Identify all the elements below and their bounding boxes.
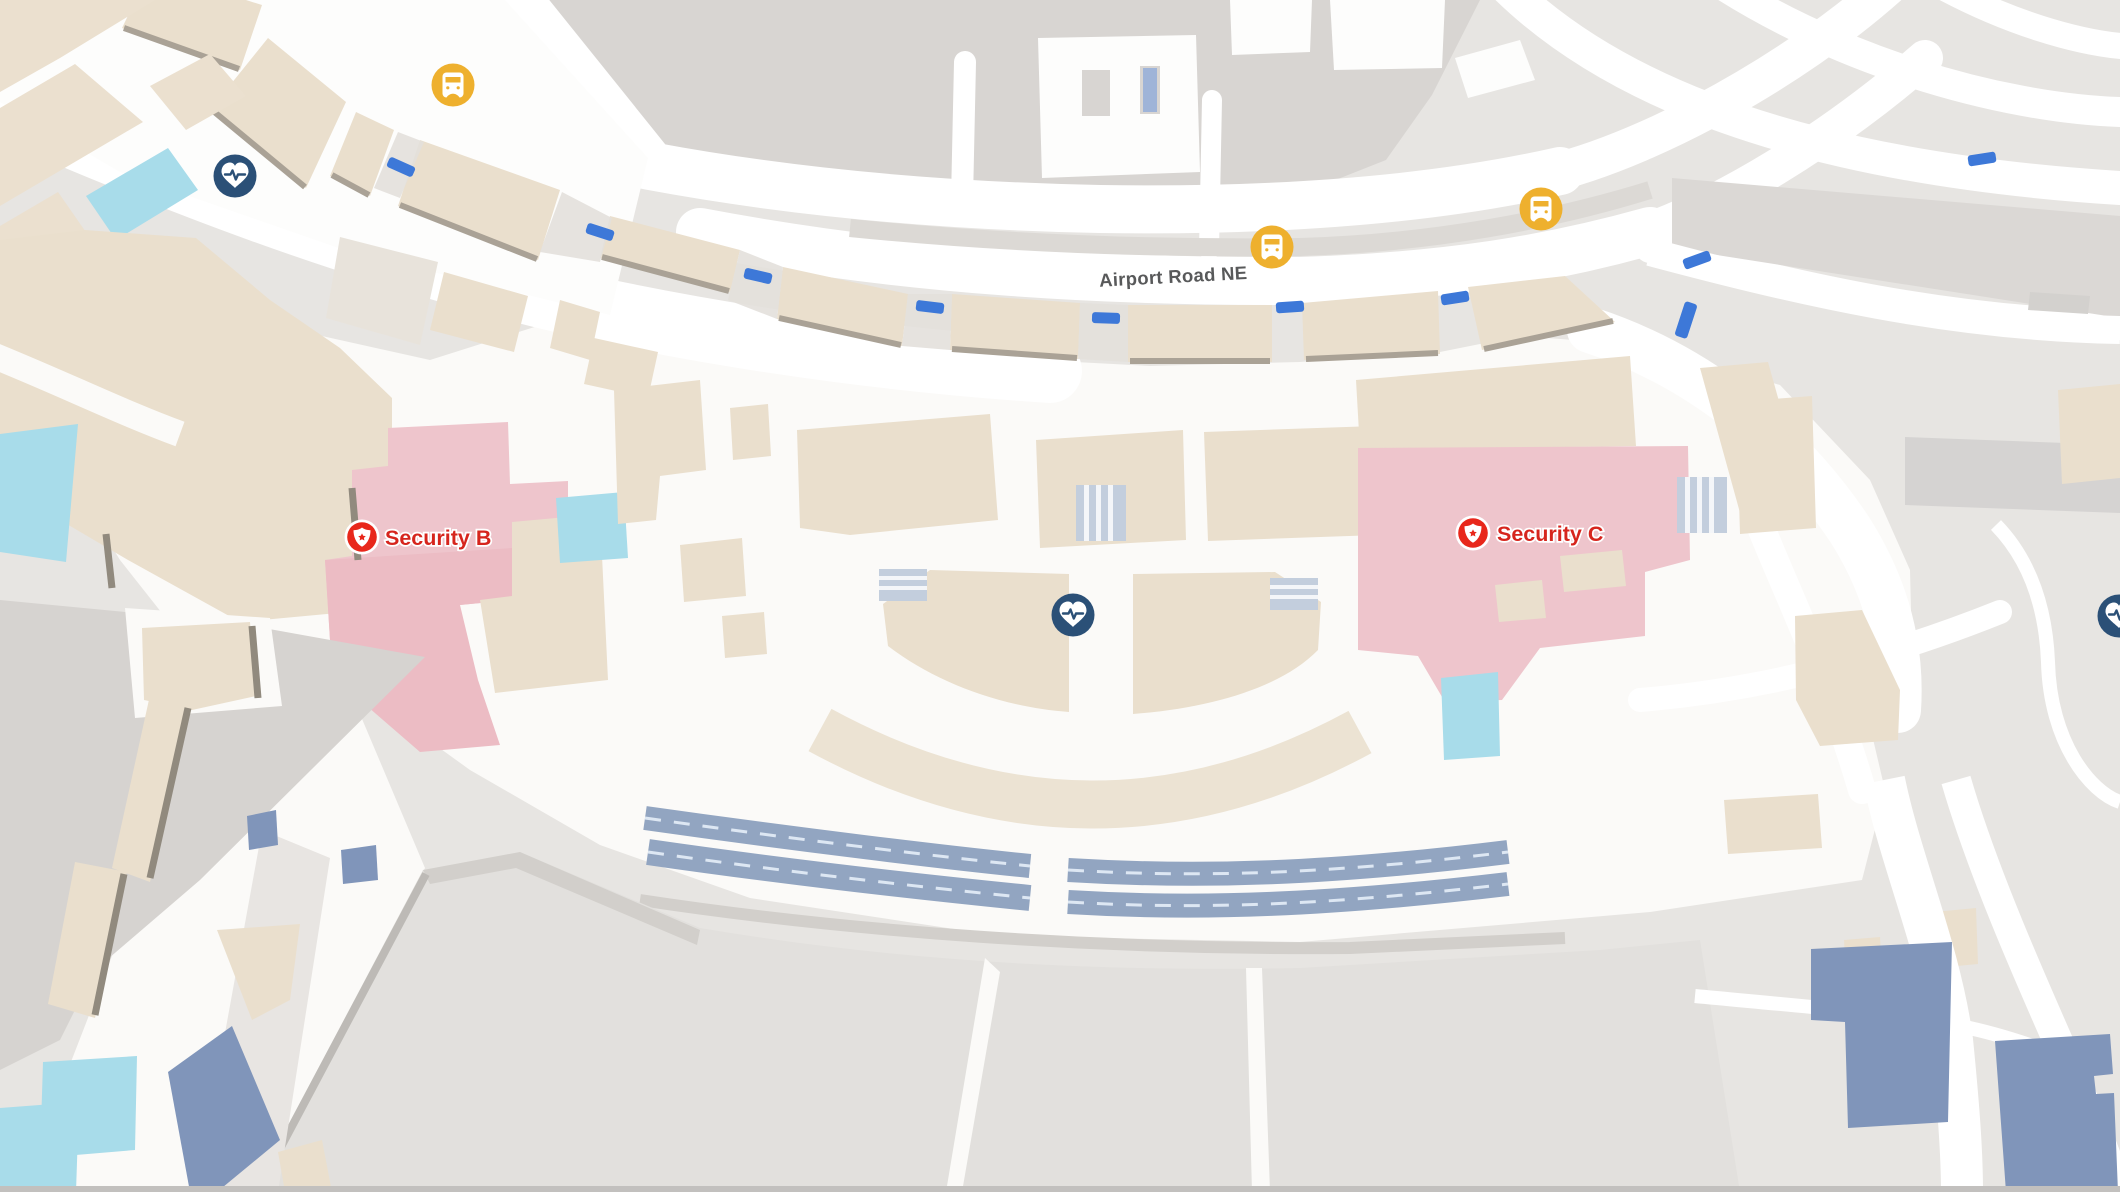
- svg-text:Security C: Security C: [1497, 522, 1603, 546]
- svg-text:Security B: Security B: [385, 526, 491, 550]
